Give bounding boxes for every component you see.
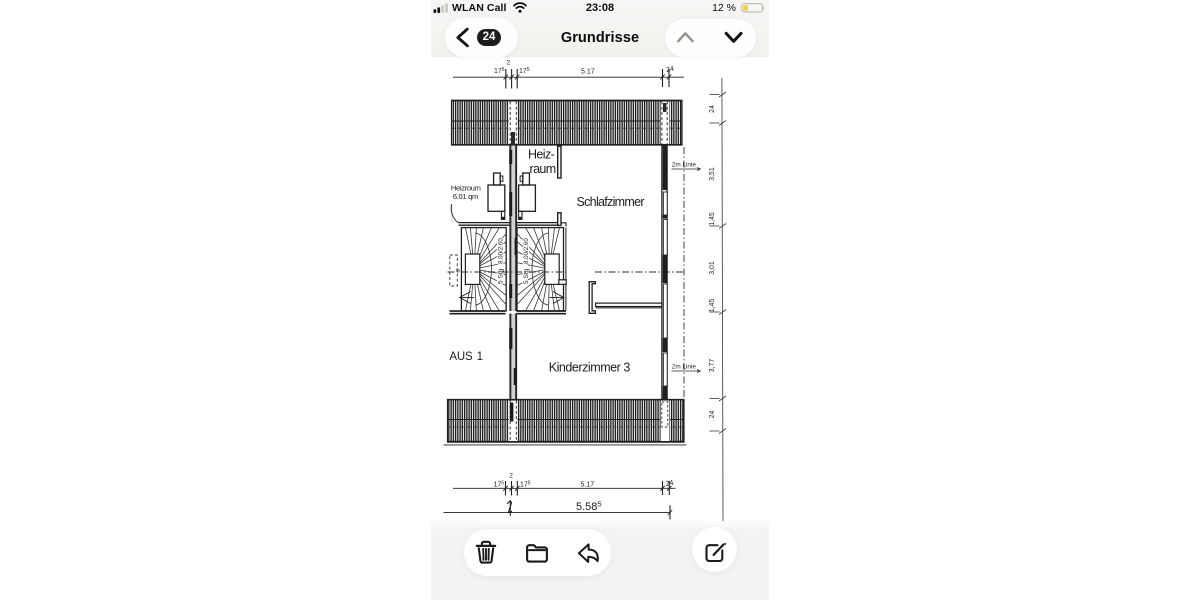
svg-text:2m Linie: 2m Linie (672, 364, 697, 371)
svg-text:9: 9 (456, 269, 462, 272)
svg-text:175: 175 (494, 67, 505, 75)
svg-text:5.17: 5.17 (581, 482, 595, 489)
svg-text:175: 175 (520, 481, 531, 489)
svg-text:175: 175 (494, 481, 505, 489)
svg-text:5 Stg: 5 Stg (498, 268, 505, 284)
svg-text:8.00/2.60: 8.00/2.60 (523, 238, 530, 264)
svg-text:3,01: 3,01 (709, 261, 716, 275)
svg-text:2: 2 (507, 60, 511, 67)
svg-text:Kinderzimmer 3: Kinderzimmer 3 (549, 361, 631, 375)
svg-text:24: 24 (665, 480, 674, 488)
svg-text:Heizroum: Heizroum (451, 184, 481, 193)
svg-text:24: 24 (709, 411, 716, 419)
svg-text:5.585: 5.585 (576, 500, 602, 514)
svg-text:raum: raum (530, 162, 556, 176)
svg-text:175: 175 (519, 67, 530, 75)
svg-text:3,77: 3,77 (709, 359, 716, 373)
svg-text:24: 24 (709, 105, 716, 113)
svg-text:AUS 1: AUS 1 (449, 351, 482, 363)
svg-text:8.00/2.60: 8.00/2.60 (498, 238, 505, 264)
svg-text:3,51: 3,51 (709, 167, 716, 181)
svg-text:6.01 qm: 6.01 qm (453, 192, 478, 201)
svg-text:1,45: 1,45 (709, 299, 716, 313)
svg-text:24: 24 (666, 66, 675, 74)
svg-text:Heiz-: Heiz- (528, 148, 555, 162)
svg-text:1,45: 1,45 (709, 212, 716, 226)
svg-text:2: 2 (509, 473, 513, 480)
svg-text:5 Stg: 5 Stg (523, 268, 530, 284)
svg-text:2m Linie: 2m Linie (672, 162, 697, 169)
svg-text:Schlafzimmer: Schlafzimmer (577, 195, 645, 209)
svg-text:5.17: 5.17 (581, 69, 595, 76)
